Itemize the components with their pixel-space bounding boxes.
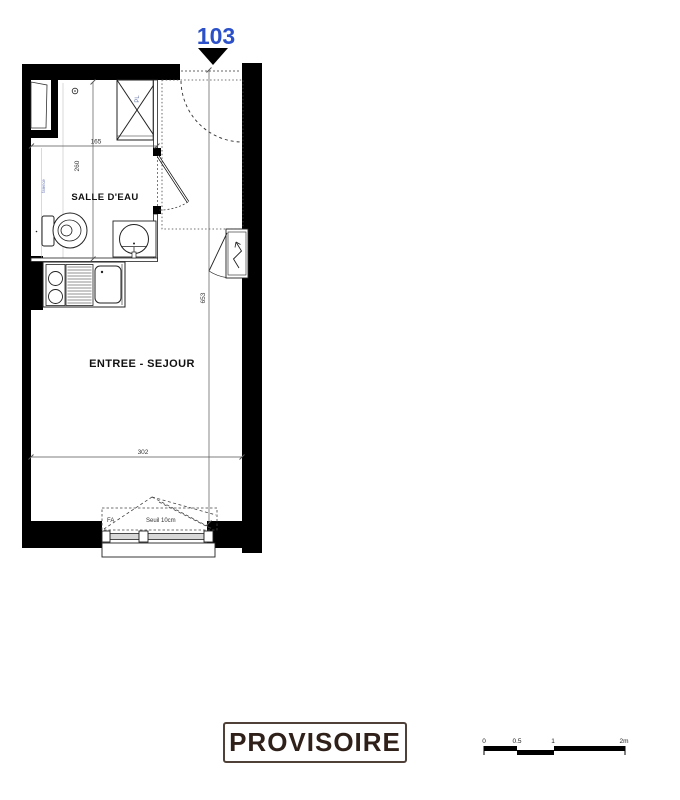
scale-tick-05: 0.5 xyxy=(512,738,521,745)
dim-bathroom-depth: 260 xyxy=(74,160,81,171)
ceiling-spot-icon xyxy=(72,88,78,94)
wall-note-label: faïence xyxy=(41,178,46,192)
room-label-bathroom: SALLE D'EAU xyxy=(71,192,138,203)
scale-tick-2m: 2m xyxy=(619,738,628,745)
entry-zone-outline xyxy=(162,80,243,229)
bottom-window xyxy=(102,497,217,557)
closet xyxy=(117,80,157,140)
provisional-stamp: PROVISOIRE xyxy=(223,722,407,763)
dim-unit-width: 302 xyxy=(138,449,149,456)
scale-tick-0: 0 xyxy=(482,738,486,745)
kitchen-unit xyxy=(43,262,125,307)
window-sill xyxy=(102,543,215,557)
window-vent-unit xyxy=(209,229,248,278)
provisional-stamp-label: PROVISOIRE xyxy=(229,727,401,758)
toilet xyxy=(36,213,87,248)
dim-unit-length: 653 xyxy=(200,292,207,303)
entrance-door-swing xyxy=(181,71,241,142)
floor-plan-drawing: 103 xyxy=(0,0,680,800)
window-label: FA xyxy=(107,518,114,524)
dim-bathroom-width: 165 xyxy=(91,139,102,146)
closet-label: PL xyxy=(135,95,141,103)
room-label-living: ENTREE - SEJOUR xyxy=(89,358,195,370)
washbasin xyxy=(113,221,156,258)
window-swing-lines xyxy=(104,497,216,529)
unit-number-label: 103 xyxy=(197,23,235,49)
unit-pointer-icon xyxy=(198,48,228,65)
scale-bar: 0 0.5 1 2m xyxy=(482,738,628,755)
threshold-label: Seuil 10cm xyxy=(146,518,176,524)
scale-tick-1: 1 xyxy=(551,738,555,745)
floor-plan-page: 103 xyxy=(0,0,680,800)
duct-shaft xyxy=(31,82,47,128)
